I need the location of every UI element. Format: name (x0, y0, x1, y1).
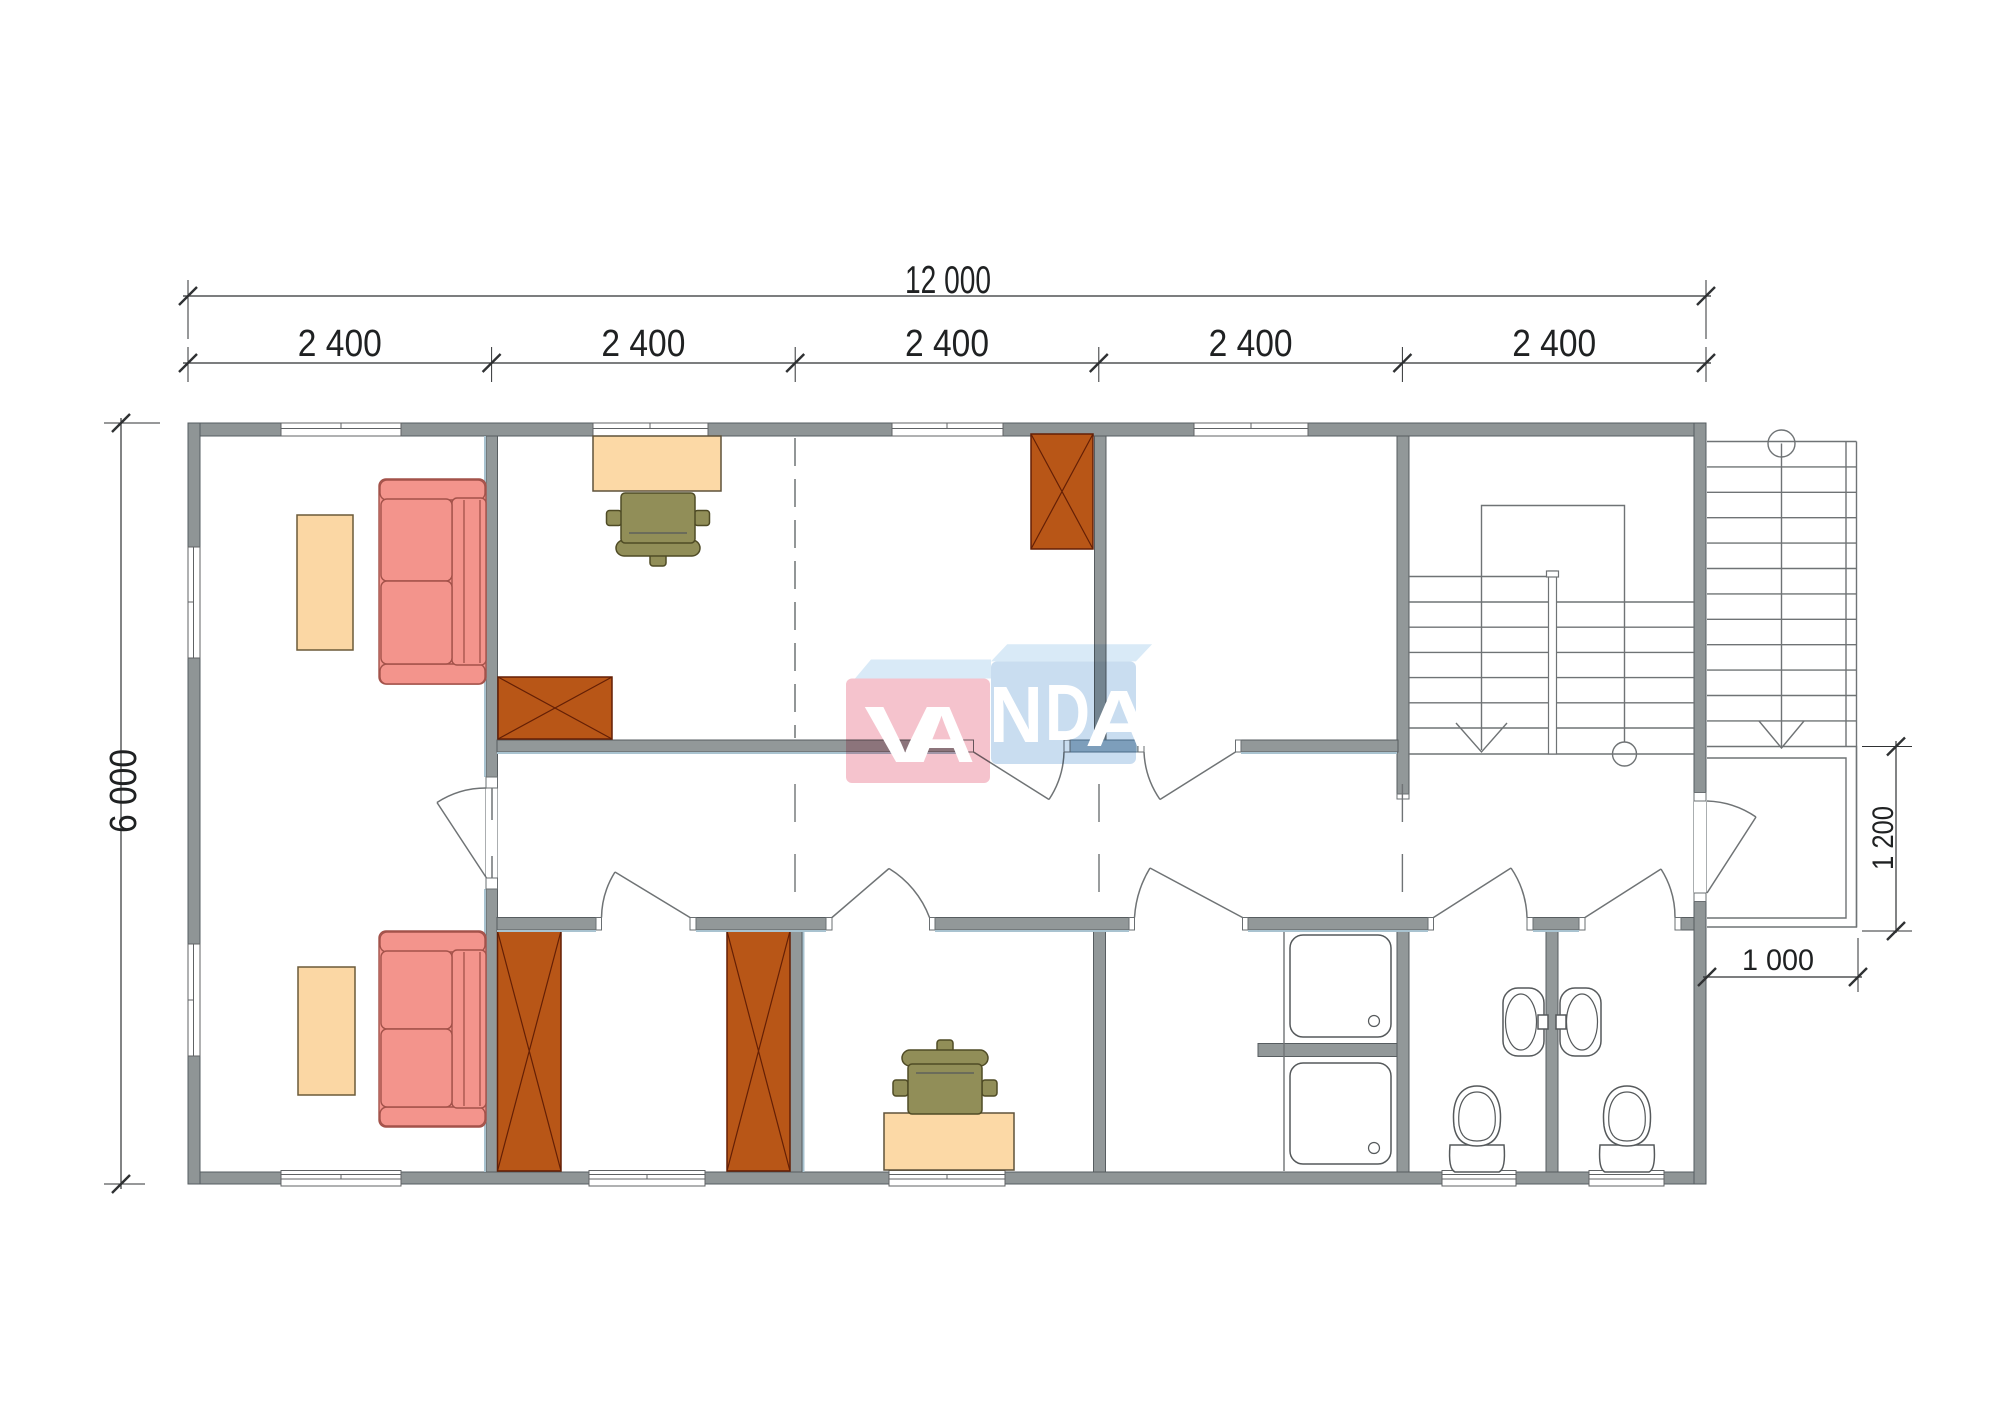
svg-text:A: A (1085, 674, 1153, 763)
svg-text:2 400: 2 400 (1512, 323, 1596, 365)
svg-text:N: N (989, 670, 1043, 759)
svg-text:D: D (1045, 668, 1090, 757)
svg-text:1 200: 1 200 (1867, 806, 1900, 870)
svg-text:A: A (908, 690, 975, 779)
svg-text:2 400: 2 400 (298, 323, 382, 365)
svg-text:6 000: 6 000 (103, 749, 145, 833)
svg-text:12 000: 12 000 (905, 259, 991, 302)
svg-text:2 400: 2 400 (905, 323, 989, 365)
svg-text:2 400: 2 400 (1209, 323, 1293, 365)
svg-text:1 000: 1 000 (1742, 944, 1814, 977)
svg-text:2 400: 2 400 (601, 323, 685, 365)
